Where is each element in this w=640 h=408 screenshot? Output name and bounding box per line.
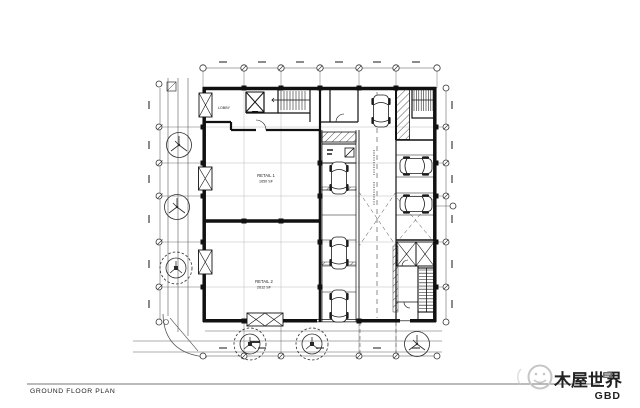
tree (234, 328, 266, 360)
parked-cars (329, 95, 432, 322)
car-stall-1 (329, 162, 348, 194)
car-aisle-top (371, 95, 390, 127)
car-stall-4 (400, 156, 432, 175)
retail1-label: RETAIL 1 (257, 173, 275, 178)
watermark-logo-icon (518, 366, 552, 389)
floor-plan-drawing: LOBBY RETAIL 1 1650 SF RETAIL 2 2612 SF … (0, 0, 640, 408)
retail2-label: RETAIL 2 (255, 279, 273, 284)
room-labels: LOBBY RETAIL 1 1650 SF RETAIL 2 2612 SF (218, 106, 276, 290)
car-stall-3 (329, 290, 348, 322)
retail2-area: 2612 SF (257, 286, 272, 290)
tree (160, 252, 192, 284)
lobby-label: LOBBY (218, 106, 231, 110)
elevator-shaft (246, 92, 264, 112)
retail1-area: 1650 SF (259, 180, 274, 184)
sheet-title: GROUND FLOOR PLAN (30, 388, 115, 395)
stair-top-right (412, 88, 435, 118)
car-stall-2 (329, 237, 348, 269)
title-block: GROUND FLOOR PLAN (27, 384, 600, 395)
brand-logo-text: GBD (595, 390, 621, 402)
entry-vestibules (199, 93, 284, 326)
car-stall-5 (400, 194, 432, 213)
drawing-sheet: LOBBY RETAIL 1 1650 SF RETAIL 2 2612 SF … (0, 0, 640, 408)
watermark-stamp-icon (603, 372, 612, 378)
tree (405, 332, 430, 357)
tree (296, 328, 328, 360)
stair-bottom-right (418, 268, 435, 312)
door-swings (256, 114, 410, 308)
utility-room (327, 148, 354, 157)
service-rooms-bottom-right (397, 242, 434, 266)
